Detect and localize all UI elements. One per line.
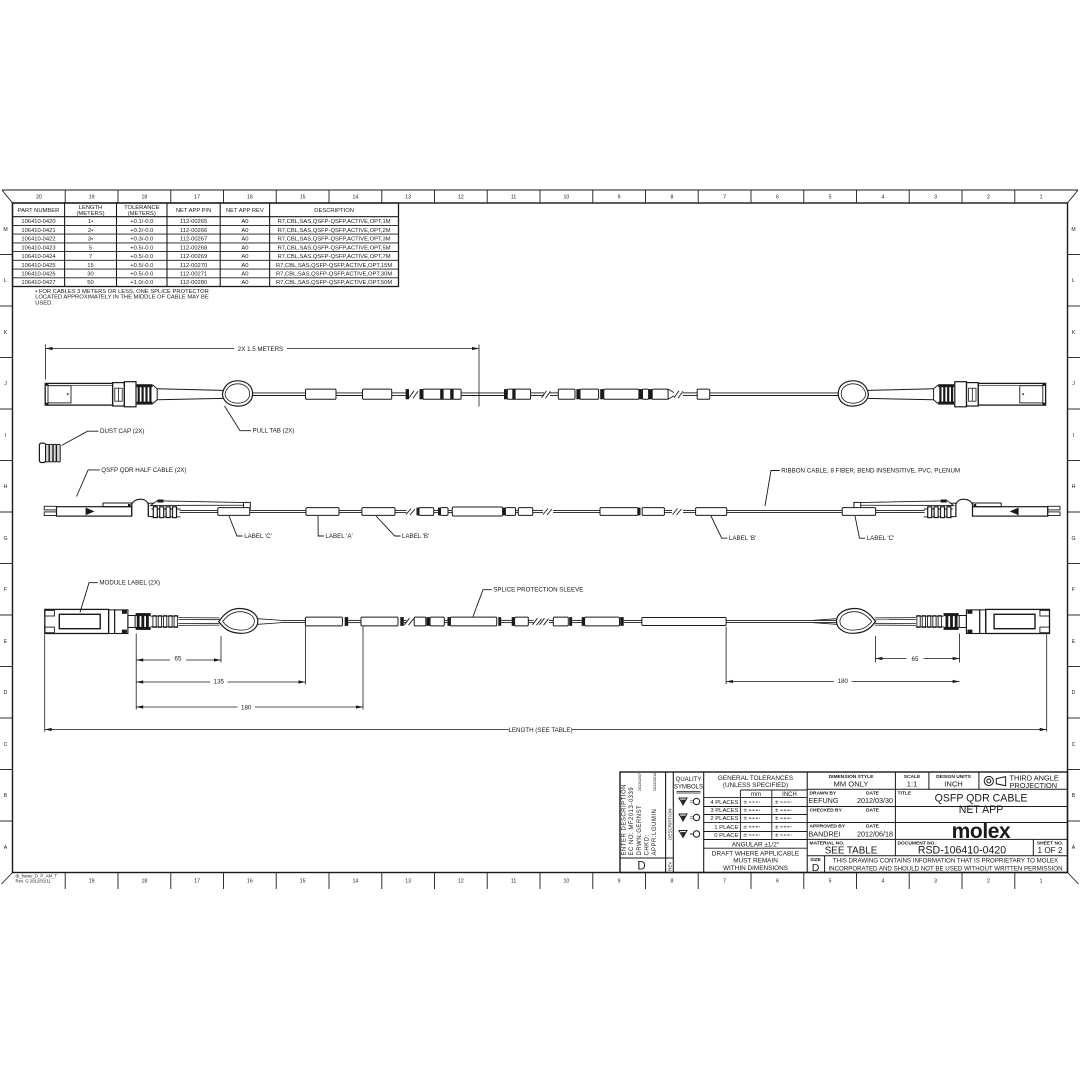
svg-text:9: 9 <box>618 879 621 885</box>
svg-text:LABEL 'C': LABEL 'C' <box>244 533 272 540</box>
svg-text:molex: molex <box>952 820 1011 843</box>
svg-text:1 PLACE: 1 PLACE <box>714 825 738 831</box>
svg-text:+0.5/-0.0: +0.5/-0.0 <box>130 245 153 251</box>
svg-text:R7,CBL,SAS,QSFP-QSFP,ACTIVE,OP: R7,CBL,SAS,QSFP-QSFP,ACTIVE,OPT,7M <box>278 254 391 260</box>
svg-text:NET APP P/N: NET APP P/N <box>176 208 212 214</box>
svg-text:QSFP QDR HALF CABLE (2X): QSFP QDR HALF CABLE (2X) <box>101 467 186 474</box>
svg-text:106410-0427: 106410-0427 <box>21 280 55 286</box>
svg-text:B: B <box>1072 793 1076 799</box>
svg-text:A0: A0 <box>241 280 248 286</box>
svg-text:R7,CBL,SAS,QSFP-QSFP,ACTIVE,OP: R7,CBL,SAS,QSFP-QSFP,ACTIVE,OPT,1M <box>278 219 391 225</box>
svg-text:K: K <box>4 330 8 336</box>
svg-text:1: 1 <box>1040 879 1043 885</box>
svg-text:QSFP QDR CABLE: QSFP QDR CABLE <box>935 793 1028 805</box>
svg-text:9: 9 <box>618 195 621 201</box>
svg-text:ENTER DESCRIPTION: ENTER DESCRIPTION <box>622 784 628 856</box>
svg-text:R7,CBL,SAS,QSFP-QSFP,ACTIVE,OP: R7,CBL,SAS,QSFP-QSFP,ACTIVE,OPT,15M <box>276 263 392 269</box>
svg-text:EC NO: MF2013-0339: EC NO: MF2013-0339 <box>629 787 635 856</box>
svg-text:11: 11 <box>511 879 516 885</box>
svg-text:3 PLACES: 3 PLACES <box>710 808 738 814</box>
svg-text:16: 16 <box>247 195 253 201</box>
svg-text:7: 7 <box>89 254 92 260</box>
svg-text:1•: 1• <box>88 219 93 225</box>
svg-text:50: 50 <box>87 280 93 286</box>
svg-text:180: 180 <box>241 704 252 711</box>
svg-text:+0.5/-0.0: +0.5/-0.0 <box>130 254 153 260</box>
svg-text:L: L <box>4 278 7 284</box>
svg-text:=: = <box>690 816 693 822</box>
svg-text:F: F <box>4 587 7 593</box>
svg-text:ANGULAR ±1/2°: ANGULAR ±1/2° <box>732 840 780 848</box>
svg-text:2: 2 <box>987 879 990 885</box>
svg-text:106410-0425: 106410-0425 <box>21 263 55 269</box>
svg-text:B: B <box>4 793 8 799</box>
svg-text:RSD-106410-0420: RSD-106410-0420 <box>918 845 1006 857</box>
svg-text:112-00265: 112-00265 <box>180 219 207 225</box>
svg-text:R7,CBL,SAS,QSFP-QSFP,ACTIVE,OP: R7,CBL,SAS,QSFP-QSFP,ACTIVE,OPT,2M <box>278 228 391 234</box>
svg-text:F: F <box>1072 587 1075 593</box>
svg-text:PROJECTION: PROJECTION <box>1010 781 1058 790</box>
svg-text:LABEL 'C': LABEL 'C' <box>867 535 895 542</box>
svg-text:QUALITY: QUALITY <box>676 777 702 783</box>
svg-text:LOCATED APPROXIMATELY IN THE M: LOCATED APPROXIMATELY IN THE MIDDLE OF C… <box>35 295 209 301</box>
svg-text:2 PLACES: 2 PLACES <box>710 816 738 822</box>
svg-text:0 PLACE: 0 PLACE <box>714 833 738 839</box>
svg-text:M: M <box>1071 227 1075 233</box>
svg-text:14: 14 <box>353 879 359 885</box>
svg-text:5: 5 <box>829 195 832 201</box>
svg-text:SYMBOLS: SYMBOLS <box>674 785 703 791</box>
svg-text:A0: A0 <box>241 219 248 225</box>
svg-text:SPLICE PROTECTION SLEEVE: SPLICE PROTECTION SLEEVE <box>493 587 583 594</box>
svg-text:H: H <box>1072 484 1076 490</box>
svg-text:2012/03/30: 2012/03/30 <box>857 796 893 805</box>
svg-text:L: L <box>1072 278 1075 284</box>
svg-text:20: 20 <box>36 195 42 201</box>
svg-text:CHKD:: CHKD: <box>645 834 651 855</box>
svg-text:18: 18 <box>142 195 148 201</box>
svg-text:19: 19 <box>89 879 95 885</box>
svg-text:+0.3/-0.0: +0.3/-0.0 <box>130 237 153 243</box>
svg-text:5: 5 <box>89 245 92 251</box>
svg-text:15: 15 <box>300 195 306 201</box>
svg-text:15: 15 <box>300 879 306 885</box>
svg-text:A: A <box>4 845 8 851</box>
svg-text:MODULE LABEL (2X): MODULE LABEL (2X) <box>99 580 160 587</box>
svg-text:1: 1 <box>1040 195 1043 201</box>
svg-text:A: A <box>1072 845 1076 851</box>
svg-text:8: 8 <box>670 879 673 885</box>
svg-text:E: E <box>1072 639 1076 645</box>
svg-text:R7,CBL,SAS,QSFP-QSFP,ACTIVE,OP: R7,CBL,SAS,QSFP-QSFP,ACTIVE,OPT,50M <box>276 280 392 286</box>
svg-text:3: 3 <box>934 195 937 201</box>
svg-text:TITLE: TITLE <box>898 790 912 796</box>
svg-text:11: 11 <box>511 195 516 201</box>
svg-text:+1.0/-0.0: +1.0/-0.0 <box>130 280 153 286</box>
svg-text:C: C <box>1072 742 1076 748</box>
svg-text:106410-0426: 106410-0426 <box>21 272 55 278</box>
svg-text:1:1: 1:1 <box>907 779 918 788</box>
svg-text:2: 2 <box>987 195 990 201</box>
svg-text:G: G <box>3 536 7 542</box>
svg-text:112-00269: 112-00269 <box>180 254 207 260</box>
svg-text:LABEL 'B': LABEL 'B' <box>729 535 756 542</box>
svg-text:INCH: INCH <box>782 792 797 798</box>
svg-text:12: 12 <box>458 195 464 201</box>
svg-text:DESCRIPTION: DESCRIPTION <box>314 208 354 214</box>
svg-text:R7,CBL,SAS,QSFP-QSFP,ACTIVE,OP: R7,CBL,SAS,QSFP-QSFP,ACTIVE,OPT,3M <box>278 237 391 243</box>
svg-text:J: J <box>4 381 7 387</box>
svg-text:PART NUMBER: PART NUMBER <box>18 208 60 214</box>
svg-text:8: 8 <box>670 195 673 201</box>
svg-text:CHECKED BY: CHECKED BY <box>810 808 843 814</box>
svg-text:A0: A0 <box>241 245 248 251</box>
svg-text:A0: A0 <box>241 272 248 278</box>
svg-text:106410-0420: 106410-0420 <box>21 219 55 225</box>
svg-text:17: 17 <box>194 879 200 885</box>
svg-text:2012/12/07: 2012/12/07 <box>637 772 642 791</box>
svg-text:7: 7 <box>723 879 726 885</box>
svg-text:DESCRIPTION: DESCRIPTION <box>668 809 673 840</box>
svg-text:(METERS): (METERS) <box>128 211 156 217</box>
svg-text:H: H <box>4 484 8 490</box>
svg-text:WITHIN DIMENSIONS: WITHIN DIMENSIONS <box>723 865 788 872</box>
svg-text:R7,CBL,SAS,QSFP-QSFP,ACTIVE,OP: R7,CBL,SAS,QSFP-QSFP,ACTIVE,OPT,30M <box>276 272 392 278</box>
svg-text:THIS DRAWING CONTAINS INFORMAT: THIS DRAWING CONTAINS INFORMATION THAT I… <box>833 858 1058 865</box>
svg-text:D: D <box>812 862 820 874</box>
svg-text:DATE: DATE <box>866 808 880 814</box>
svg-text:DUST CAP (2X): DUST CAP (2X) <box>100 428 144 435</box>
svg-text:65: 65 <box>912 656 919 663</box>
svg-text:=: = <box>690 832 693 838</box>
svg-text:112-00266: 112-00266 <box>180 228 207 234</box>
svg-text:7: 7 <box>723 195 726 201</box>
svg-text:mm: mm <box>751 792 761 798</box>
svg-text:4: 4 <box>881 879 884 885</box>
svg-text:10: 10 <box>564 879 570 885</box>
svg-text:112-00267: 112-00267 <box>180 237 207 243</box>
svg-text:19: 19 <box>89 195 95 201</box>
svg-text:6: 6 <box>776 195 779 201</box>
svg-text:135: 135 <box>214 679 225 686</box>
svg-text:A0: A0 <box>241 254 248 260</box>
svg-text:A0: A0 <box>241 228 248 234</box>
svg-text:INCH: INCH <box>944 779 963 788</box>
svg-text:2•: 2• <box>88 228 93 234</box>
svg-text:65: 65 <box>175 656 182 663</box>
svg-text:+0.5/-0.0: +0.5/-0.0 <box>130 263 153 269</box>
svg-text:GENERAL TOLERANCES: GENERAL TOLERANCES <box>718 775 793 782</box>
svg-text:4: 4 <box>881 195 884 201</box>
svg-text:D: D <box>1072 690 1076 696</box>
svg-text:3: 3 <box>934 879 937 885</box>
svg-text:106410-0422: 106410-0422 <box>21 237 55 243</box>
svg-text:14: 14 <box>353 195 359 201</box>
svg-text:112-00271: 112-00271 <box>180 272 207 278</box>
svg-text:5: 5 <box>829 879 832 885</box>
svg-text:18: 18 <box>142 879 148 885</box>
svg-text:1 OF 2: 1 OF 2 <box>1037 846 1062 855</box>
svg-text:RIBBON CABLE, 8 FIBER, BEND IN: RIBBON CABLE, 8 FIBER, BEND INSENSITIVE,… <box>781 467 960 474</box>
svg-text:LENGTH (SEE TABLE): LENGTH (SEE TABLE) <box>508 727 572 734</box>
svg-text:Rev. G 2012/01/11: Rev. G 2012/01/11 <box>16 879 52 884</box>
svg-text:16: 16 <box>247 879 253 885</box>
svg-text:E: E <box>4 639 8 645</box>
svg-text:PULL TAB (2X): PULL TAB (2X) <box>253 428 295 435</box>
svg-text:(METERS): (METERS) <box>76 211 104 217</box>
svg-text:MM ONLY: MM ONLY <box>834 779 869 788</box>
svg-text:6: 6 <box>776 879 779 885</box>
svg-text:3•: 3• <box>88 237 93 243</box>
svg-text:I: I <box>1073 433 1074 439</box>
svg-text:106410-0424: 106410-0424 <box>21 254 56 260</box>
svg-text:EEFUNG: EEFUNG <box>809 796 839 805</box>
svg-text:+0.5/-0.0: +0.5/-0.0 <box>130 272 153 278</box>
svg-text:J: J <box>1072 381 1075 387</box>
svg-text:SEE TABLE: SEE TABLE <box>825 845 878 856</box>
svg-text:LABEL 'B': LABEL 'B' <box>402 533 429 540</box>
svg-text:D: D <box>637 861 645 873</box>
svg-text:REV: REV <box>668 861 673 871</box>
svg-text:K: K <box>1072 330 1076 336</box>
svg-text:USED.: USED. <box>35 300 53 306</box>
svg-text:INCORPORATED AND SHOULD NOT BE: INCORPORATED AND SHOULD NOT BE USED WITH… <box>828 865 1062 872</box>
svg-text:A0: A0 <box>241 263 248 269</box>
svg-text:G: G <box>1071 536 1075 542</box>
svg-text:=: = <box>690 800 693 806</box>
svg-text:M: M <box>3 227 7 233</box>
svg-text:(UNLESS SPECIFIED): (UNLESS SPECIFIED) <box>723 782 788 789</box>
svg-text:MUST REMAIN: MUST REMAIN <box>733 858 778 865</box>
svg-text:13: 13 <box>405 879 411 885</box>
svg-text:R7,CBL,SAS,QSFP-QSFP,ACTIVE,OP: R7,CBL,SAS,QSFP-QSFP,ACTIVE,OPT,5M <box>278 245 391 251</box>
svg-text:17: 17 <box>194 195 200 201</box>
svg-text:+0.2/-0.0: +0.2/-0.0 <box>130 228 153 234</box>
svg-text:NET APP: NET APP <box>959 804 1004 816</box>
svg-text:DRWN:GERNST: DRWN:GERNST <box>637 805 643 856</box>
svg-text:APPR:LGUMIN: APPR:LGUMIN <box>652 809 658 856</box>
svg-text:15: 15 <box>87 263 93 269</box>
svg-text:NET APP REV: NET APP REV <box>226 208 264 214</box>
svg-text:106410-0421: 106410-0421 <box>21 228 55 234</box>
svg-text:180: 180 <box>838 678 849 685</box>
svg-text:LABEL 'A': LABEL 'A' <box>325 533 352 540</box>
svg-text:C: C <box>4 742 8 748</box>
svg-text:2012/06/18: 2012/06/18 <box>857 829 893 838</box>
svg-text:112-00270: 112-00270 <box>180 263 207 269</box>
svg-text:30: 30 <box>87 272 93 278</box>
svg-text:4 PLACES: 4 PLACES <box>710 800 738 806</box>
svg-text:2012/12/13: 2012/12/13 <box>652 772 657 791</box>
svg-text:12: 12 <box>458 879 464 885</box>
svg-text:112-00280: 112-00280 <box>180 280 207 286</box>
svg-text:BANDREI: BANDREI <box>809 829 841 838</box>
svg-text:112-00268: 112-00268 <box>180 245 207 251</box>
svg-text:10: 10 <box>564 195 570 201</box>
svg-text:106410-0423: 106410-0423 <box>21 245 55 251</box>
svg-text:A0: A0 <box>241 237 248 243</box>
svg-text:D: D <box>4 690 8 696</box>
svg-text:+0.1/-0.0: +0.1/-0.0 <box>130 219 153 225</box>
svg-text:13: 13 <box>405 195 411 201</box>
svg-text:DRAFT WHERE APPLICABLE: DRAFT WHERE APPLICABLE <box>712 850 799 857</box>
svg-text:2X 1.5 METERS: 2X 1.5 METERS <box>238 346 283 353</box>
svg-text:I: I <box>5 433 6 439</box>
